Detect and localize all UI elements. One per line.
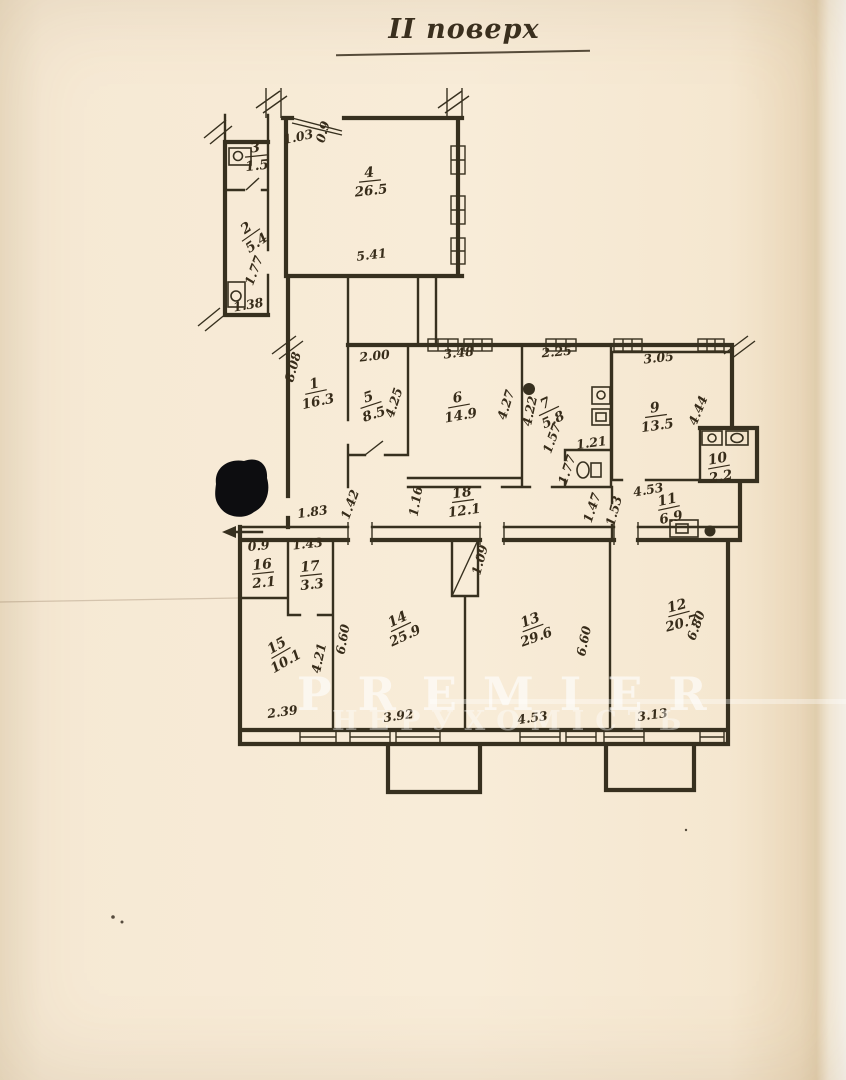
bath-wc-bowl-icon	[731, 434, 743, 443]
svg-text:1: 1	[308, 375, 321, 393]
dimension-label: 6.60	[333, 623, 353, 656]
dimension-label: 2.39	[265, 702, 299, 721]
svg-text:6: 6	[451, 389, 464, 406]
room-label-14: 1425.9	[378, 605, 424, 650]
dimension-label: 4.44	[685, 393, 710, 427]
dimension-label: 1.43	[292, 534, 324, 552]
hall-fixture-inner-icon	[676, 524, 688, 533]
dimension-label: 6.60	[573, 624, 594, 657]
svg-text:2.2: 2.2	[707, 467, 734, 487]
dimension-label: 4.25	[382, 386, 406, 420]
ink-blot	[215, 460, 268, 517]
dimension-label: 1.16	[406, 485, 426, 518]
room-label-1: 116.3	[297, 373, 336, 413]
dimension-label: 3.05	[643, 348, 675, 366]
room-label-2: 25.4	[232, 215, 271, 256]
svg-text:3.3: 3.3	[300, 576, 325, 594]
svg-text:2.1: 2.1	[251, 574, 277, 592]
paper-crease	[0, 598, 238, 602]
dimension-label: 1.38	[232, 294, 265, 314]
black-dot-mark	[705, 526, 716, 537]
kitchen-unit-icon	[592, 409, 610, 425]
stove-icon	[523, 383, 535, 395]
room-label-16: 162.1	[249, 556, 277, 592]
svg-text:26.5: 26.5	[353, 181, 388, 200]
svg-text:3: 3	[249, 140, 261, 157]
dimension-label: 0.9	[247, 537, 270, 554]
dimension-label: 1.77	[242, 253, 267, 287]
kitchen-sink-basin-icon	[597, 391, 605, 399]
room-label-18: 1812.1	[444, 483, 481, 521]
ink-specks	[111, 829, 687, 924]
dimension-label: 5.41	[355, 245, 387, 264]
svg-text:9: 9	[649, 399, 661, 416]
dimension-label: 1.83	[296, 502, 329, 521]
bath-sink-icon	[702, 431, 722, 445]
dimension-label: 1.77	[555, 453, 579, 487]
room-label-13: 1329.6	[511, 607, 555, 651]
room-label-4: 426.5	[351, 163, 388, 200]
room-label-9: 913.5	[637, 398, 674, 436]
dimension-label: 2.25	[540, 343, 573, 361]
scanned-floor-plan-page: ІІ поверх	[0, 0, 846, 1080]
room-label-17: 173.3	[298, 558, 325, 594]
wc-toilet-icon	[577, 462, 589, 478]
svg-text:17: 17	[300, 558, 321, 576]
kitchen-unit-inner-icon	[596, 413, 606, 421]
svg-text:12.1: 12.1	[447, 501, 482, 521]
svg-text:13.5: 13.5	[640, 416, 675, 436]
kitchen-sink-icon	[592, 387, 610, 404]
dimension-label: 3.48	[443, 343, 475, 361]
dimension-labels-layer: 1.030.95.411.381.778.082.004.253.484.272…	[232, 119, 711, 727]
svg-text:1.5: 1.5	[245, 157, 270, 175]
watermark-subtitle: НЕРУХОМІСТЬ	[332, 706, 692, 737]
room-labels-layer: 31.525.4426.5116.358.5614.975.8913.5102.…	[232, 139, 733, 677]
svg-text:6.9: 6.9	[658, 507, 685, 528]
dimension-label: 1.09	[468, 543, 490, 577]
dimension-label: 4.27	[494, 388, 517, 422]
dimension-label: 1.42	[338, 487, 363, 521]
sink-basin-icon	[234, 152, 243, 161]
svg-text:4: 4	[363, 165, 374, 182]
room-label-3: 31.5	[243, 139, 270, 175]
bath-sink-basin-icon	[708, 434, 716, 442]
dimension-label: 0.9	[313, 119, 333, 144]
room-label-6: 614.9	[440, 387, 479, 426]
room-label-5: 58.5	[355, 386, 388, 426]
wc-cistern-icon	[591, 463, 601, 477]
dimension-label: 2.00	[358, 346, 391, 364]
floor-plan-drawing: 31.525.4426.5116.358.5614.975.8913.5102.…	[0, 0, 846, 1080]
dimension-label: 1.47	[580, 491, 604, 525]
room-label-11: 116.9	[654, 490, 685, 528]
dimension-label: 1.53	[602, 494, 624, 528]
svg-text:16: 16	[252, 556, 273, 574]
